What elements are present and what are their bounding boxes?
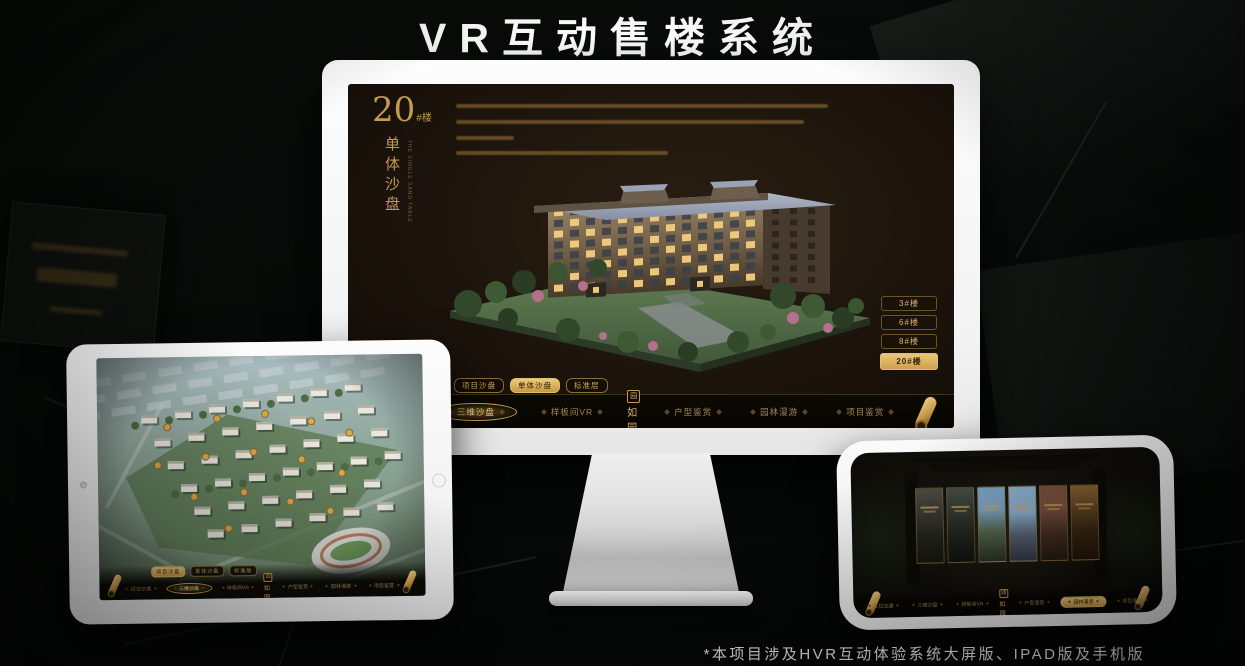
nav-item[interactable]: 样板间VR <box>953 600 991 608</box>
nav-item[interactable]: 园林漫游 <box>746 406 812 418</box>
tablet-navbar: 项目沙盘单体沙盘标准层 区位交通三维沙盘样板间VR园如园户型鉴赏园林漫游项目鉴赏 <box>99 562 425 601</box>
sub-tab[interactable]: 标准层 <box>229 565 257 576</box>
tablet-device: 项目沙盘单体沙盘标准层 区位交通三维沙盘样板间VR园如园户型鉴赏园林漫游项目鉴赏 <box>66 339 454 624</box>
sub-tab[interactable]: 标准层 <box>566 378 608 393</box>
section-subtitle: 单体沙盘 <box>382 136 403 216</box>
description-text-line <box>456 104 828 108</box>
description-text-line <box>456 120 804 124</box>
nav-item[interactable]: 户型鉴赏 <box>280 583 316 591</box>
gallery-panel[interactable] <box>977 486 1007 563</box>
gallery-panel-caption <box>920 506 938 508</box>
nav-item[interactable]: 样板间VR <box>219 584 257 592</box>
nav-item[interactable]: 园林漫游 <box>323 582 359 590</box>
brand-logo[interactable]: 园如园 <box>264 573 273 600</box>
phone-nav-row: 区位交通三维沙盘样板间VR园如园户型鉴赏园林漫游项目鉴赏 <box>893 591 1122 616</box>
floor-button[interactable]: 8#楼 <box>881 334 937 349</box>
nav-item[interactable]: 区位交通 <box>865 602 901 610</box>
nav-item[interactable]: 三维沙盘 <box>909 601 945 609</box>
plaque-text-blur <box>50 306 102 316</box>
gallery-panel-caption <box>1075 503 1093 505</box>
nav-item[interactable]: 户型鉴赏 <box>660 406 726 418</box>
tablet-camera <box>80 481 87 488</box>
gallery-panel[interactable] <box>915 487 945 564</box>
background-plaque <box>0 202 166 355</box>
nav-item[interactable]: 户型鉴赏 <box>1016 599 1052 607</box>
building-heading: 20#楼 <box>372 92 432 128</box>
gallery-panel[interactable] <box>1008 485 1038 562</box>
brand-seal-icon: 园 <box>627 390 640 403</box>
plaque-text-blur <box>31 242 127 256</box>
brand-logo-text: 如园 <box>999 599 1008 617</box>
page-title: VR互动售楼系统 <box>0 4 1245 64</box>
nav-item[interactable]: 三维沙盘 <box>166 582 212 594</box>
gallery-panel[interactable] <box>1070 484 1100 561</box>
floor-button[interactable]: 6#楼 <box>881 315 937 330</box>
sub-tab[interactable]: 项目沙盘 <box>151 566 185 577</box>
sub-tab[interactable]: 单体沙盘 <box>190 566 224 577</box>
brand-seal-icon: 园 <box>999 589 1008 598</box>
tablet-subtabs: 项目沙盘单体沙盘标准层 <box>151 565 257 577</box>
sub-tab[interactable]: 项目沙盘 <box>454 378 504 393</box>
nav-item[interactable]: 样板间VR <box>537 406 607 418</box>
floor-button-group: 3#楼6#楼8#楼20#楼 <box>880 296 938 370</box>
desktop-subtabs: 项目沙盘单体沙盘标准层 <box>454 378 608 393</box>
phone-device: 区位交通三维沙盘样板间VR园如园户型鉴赏园林漫游项目鉴赏 <box>836 434 1177 630</box>
nav-item[interactable]: 项目鉴赏 <box>366 582 402 590</box>
building-number: 20 <box>372 90 415 130</box>
floor-button[interactable]: 3#楼 <box>881 296 937 311</box>
phone-app-screen: 区位交通三维沙盘样板间VR园如园户型鉴赏园林漫游项目鉴赏 <box>850 447 1162 618</box>
brand-seal-icon: 园 <box>264 573 273 582</box>
floor-button[interactable]: 20#楼 <box>880 353 938 370</box>
building-number-suffix: #楼 <box>416 113 432 124</box>
phone-navbar: 区位交通三维沙盘样板间VR园如园户型鉴赏园林漫游项目鉴赏 <box>853 586 1162 618</box>
gallery-panel-row <box>915 484 1100 564</box>
nav-item[interactable]: 项目鉴赏 <box>832 406 898 418</box>
plaque-text-blur <box>37 267 118 288</box>
tablet-app-screen: 项目沙盘单体沙盘标准层 区位交通三维沙盘样板间VR园如园户型鉴赏园林漫游项目鉴赏 <box>96 354 425 601</box>
monitor-stand-base <box>549 591 753 606</box>
brand-logo-text: 如园 <box>627 404 640 429</box>
nav-item[interactable]: 园林漫游 <box>1060 595 1106 607</box>
scroll-handle-icon[interactable] <box>107 574 122 597</box>
gallery-panel-caption <box>1044 504 1062 506</box>
section-subtitle-en: THE SINGLE SAND TABLE <box>406 140 412 223</box>
gallery-panel-caption <box>951 506 969 508</box>
project-footnote: *本项目涉及HVR互动体验系统大屏版、IPAD版及手机版 <box>704 643 1145 664</box>
brand-logo-text: 如园 <box>264 583 273 600</box>
tablet-home-button[interactable] <box>432 473 446 487</box>
gallery-panel-caption <box>982 505 1000 507</box>
description-text-line <box>456 136 514 140</box>
gallery-panel[interactable] <box>946 487 976 564</box>
desktop-nav-row: 区位交通三维沙盘样板间VR园如园户型鉴赏园林漫游项目鉴赏 <box>378 395 869 428</box>
page-canvas: VR互动售楼系统 20#楼 单体沙盘 THE SINGLE SAND TABLE <box>0 0 1245 666</box>
tablet-nav-row: 区位交通三维沙盘样板间VR园如园户型鉴赏园林漫游项目鉴赏 <box>133 575 391 599</box>
sub-tab[interactable]: 单体沙盘 <box>510 378 560 393</box>
gallery-panel-caption <box>1013 504 1031 506</box>
nav-item[interactable]: 区位交通 <box>123 585 159 593</box>
scroll-handle-icon[interactable] <box>402 569 417 592</box>
monitor-stand-neck <box>546 453 756 593</box>
brand-logo[interactable]: 园如园 <box>627 390 640 429</box>
gallery-panel[interactable] <box>1039 485 1069 562</box>
nav-item[interactable]: 项目鉴赏 <box>1114 597 1150 605</box>
scroll-handle-icon[interactable] <box>914 395 939 428</box>
building-3d-render <box>438 146 878 380</box>
brand-logo[interactable]: 园如园 <box>999 589 1009 617</box>
